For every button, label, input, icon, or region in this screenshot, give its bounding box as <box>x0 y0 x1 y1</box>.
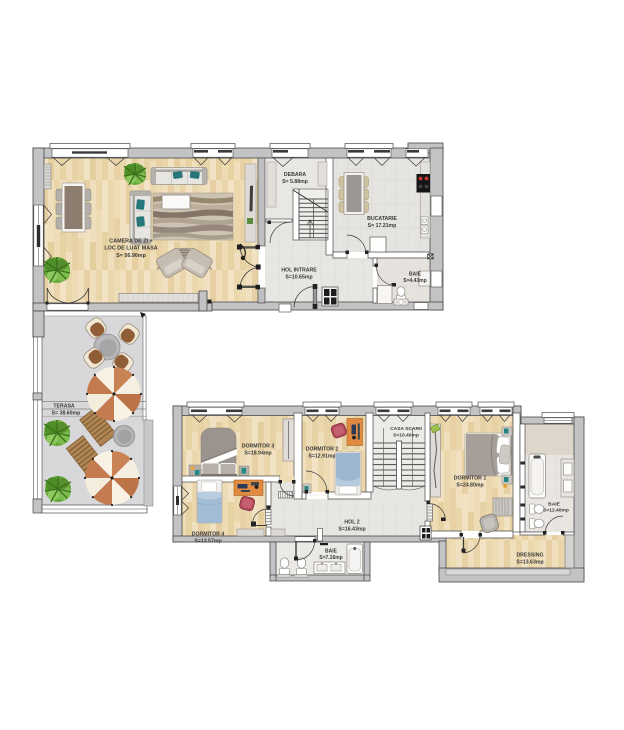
svg-text:HOL INTRARE: HOL INTRARE <box>281 268 317 274</box>
svg-text:S= 5.88mp: S= 5.88mp <box>282 179 308 185</box>
svg-text:S=12.91mp: S=12.91mp <box>308 454 335 460</box>
svg-text:DORMITOR 2: DORMITOR 2 <box>306 447 339 453</box>
svg-text:S=13.57mp: S=13.57mp <box>194 539 221 545</box>
svg-text:S=12.40mp: S=12.40mp <box>543 508 569 514</box>
svg-text:S=10.40mp: S=10.40mp <box>393 433 419 439</box>
svg-text:BAIE: BAIE <box>409 272 422 278</box>
svg-text:DRESSING: DRESSING <box>516 553 543 559</box>
svg-text:DORMITOR 3: DORMITOR 3 <box>242 444 275 450</box>
svg-text:BAIE: BAIE <box>325 549 338 555</box>
svg-text:S= 17.21mp: S= 17.21mp <box>368 223 397 229</box>
svg-text:S=13.63mp: S=13.63mp <box>516 560 543 566</box>
svg-text:S=7.16mp: S=7.16mp <box>319 555 343 561</box>
svg-text:CASA SCARII: CASA SCARII <box>390 426 422 432</box>
svg-text:S=10.65mp: S=10.65mp <box>285 275 312 281</box>
svg-text:BAIE: BAIE <box>548 502 560 508</box>
svg-text:S=4.43mp: S=4.43mp <box>403 278 427 284</box>
svg-text:DORMITOR 1: DORMITOR 1 <box>454 476 487 482</box>
svg-text:S=16.43mp: S=16.43mp <box>338 527 365 533</box>
svg-text:S=18.94mp: S=18.94mp <box>244 451 271 457</box>
svg-text:BUCATARIE: BUCATARIE <box>367 216 397 222</box>
svg-text:S=24.80mp: S=24.80mp <box>456 483 483 489</box>
svg-text:LOC DE LUAT MASA: LOC DE LUAT MASA <box>104 246 157 252</box>
svg-text:S= 56.90mp: S= 56.90mp <box>116 253 147 259</box>
svg-text:TERASA: TERASA <box>53 404 75 410</box>
svg-text:DORMITOR 4: DORMITOR 4 <box>192 532 225 538</box>
svg-text:CAMERA DE ZI +: CAMERA DE ZI + <box>109 239 152 245</box>
svg-text:S= 38.60mp: S= 38.60mp <box>52 411 81 417</box>
svg-text:DEBARA: DEBARA <box>284 172 306 178</box>
svg-text:HOL 2: HOL 2 <box>344 520 359 526</box>
